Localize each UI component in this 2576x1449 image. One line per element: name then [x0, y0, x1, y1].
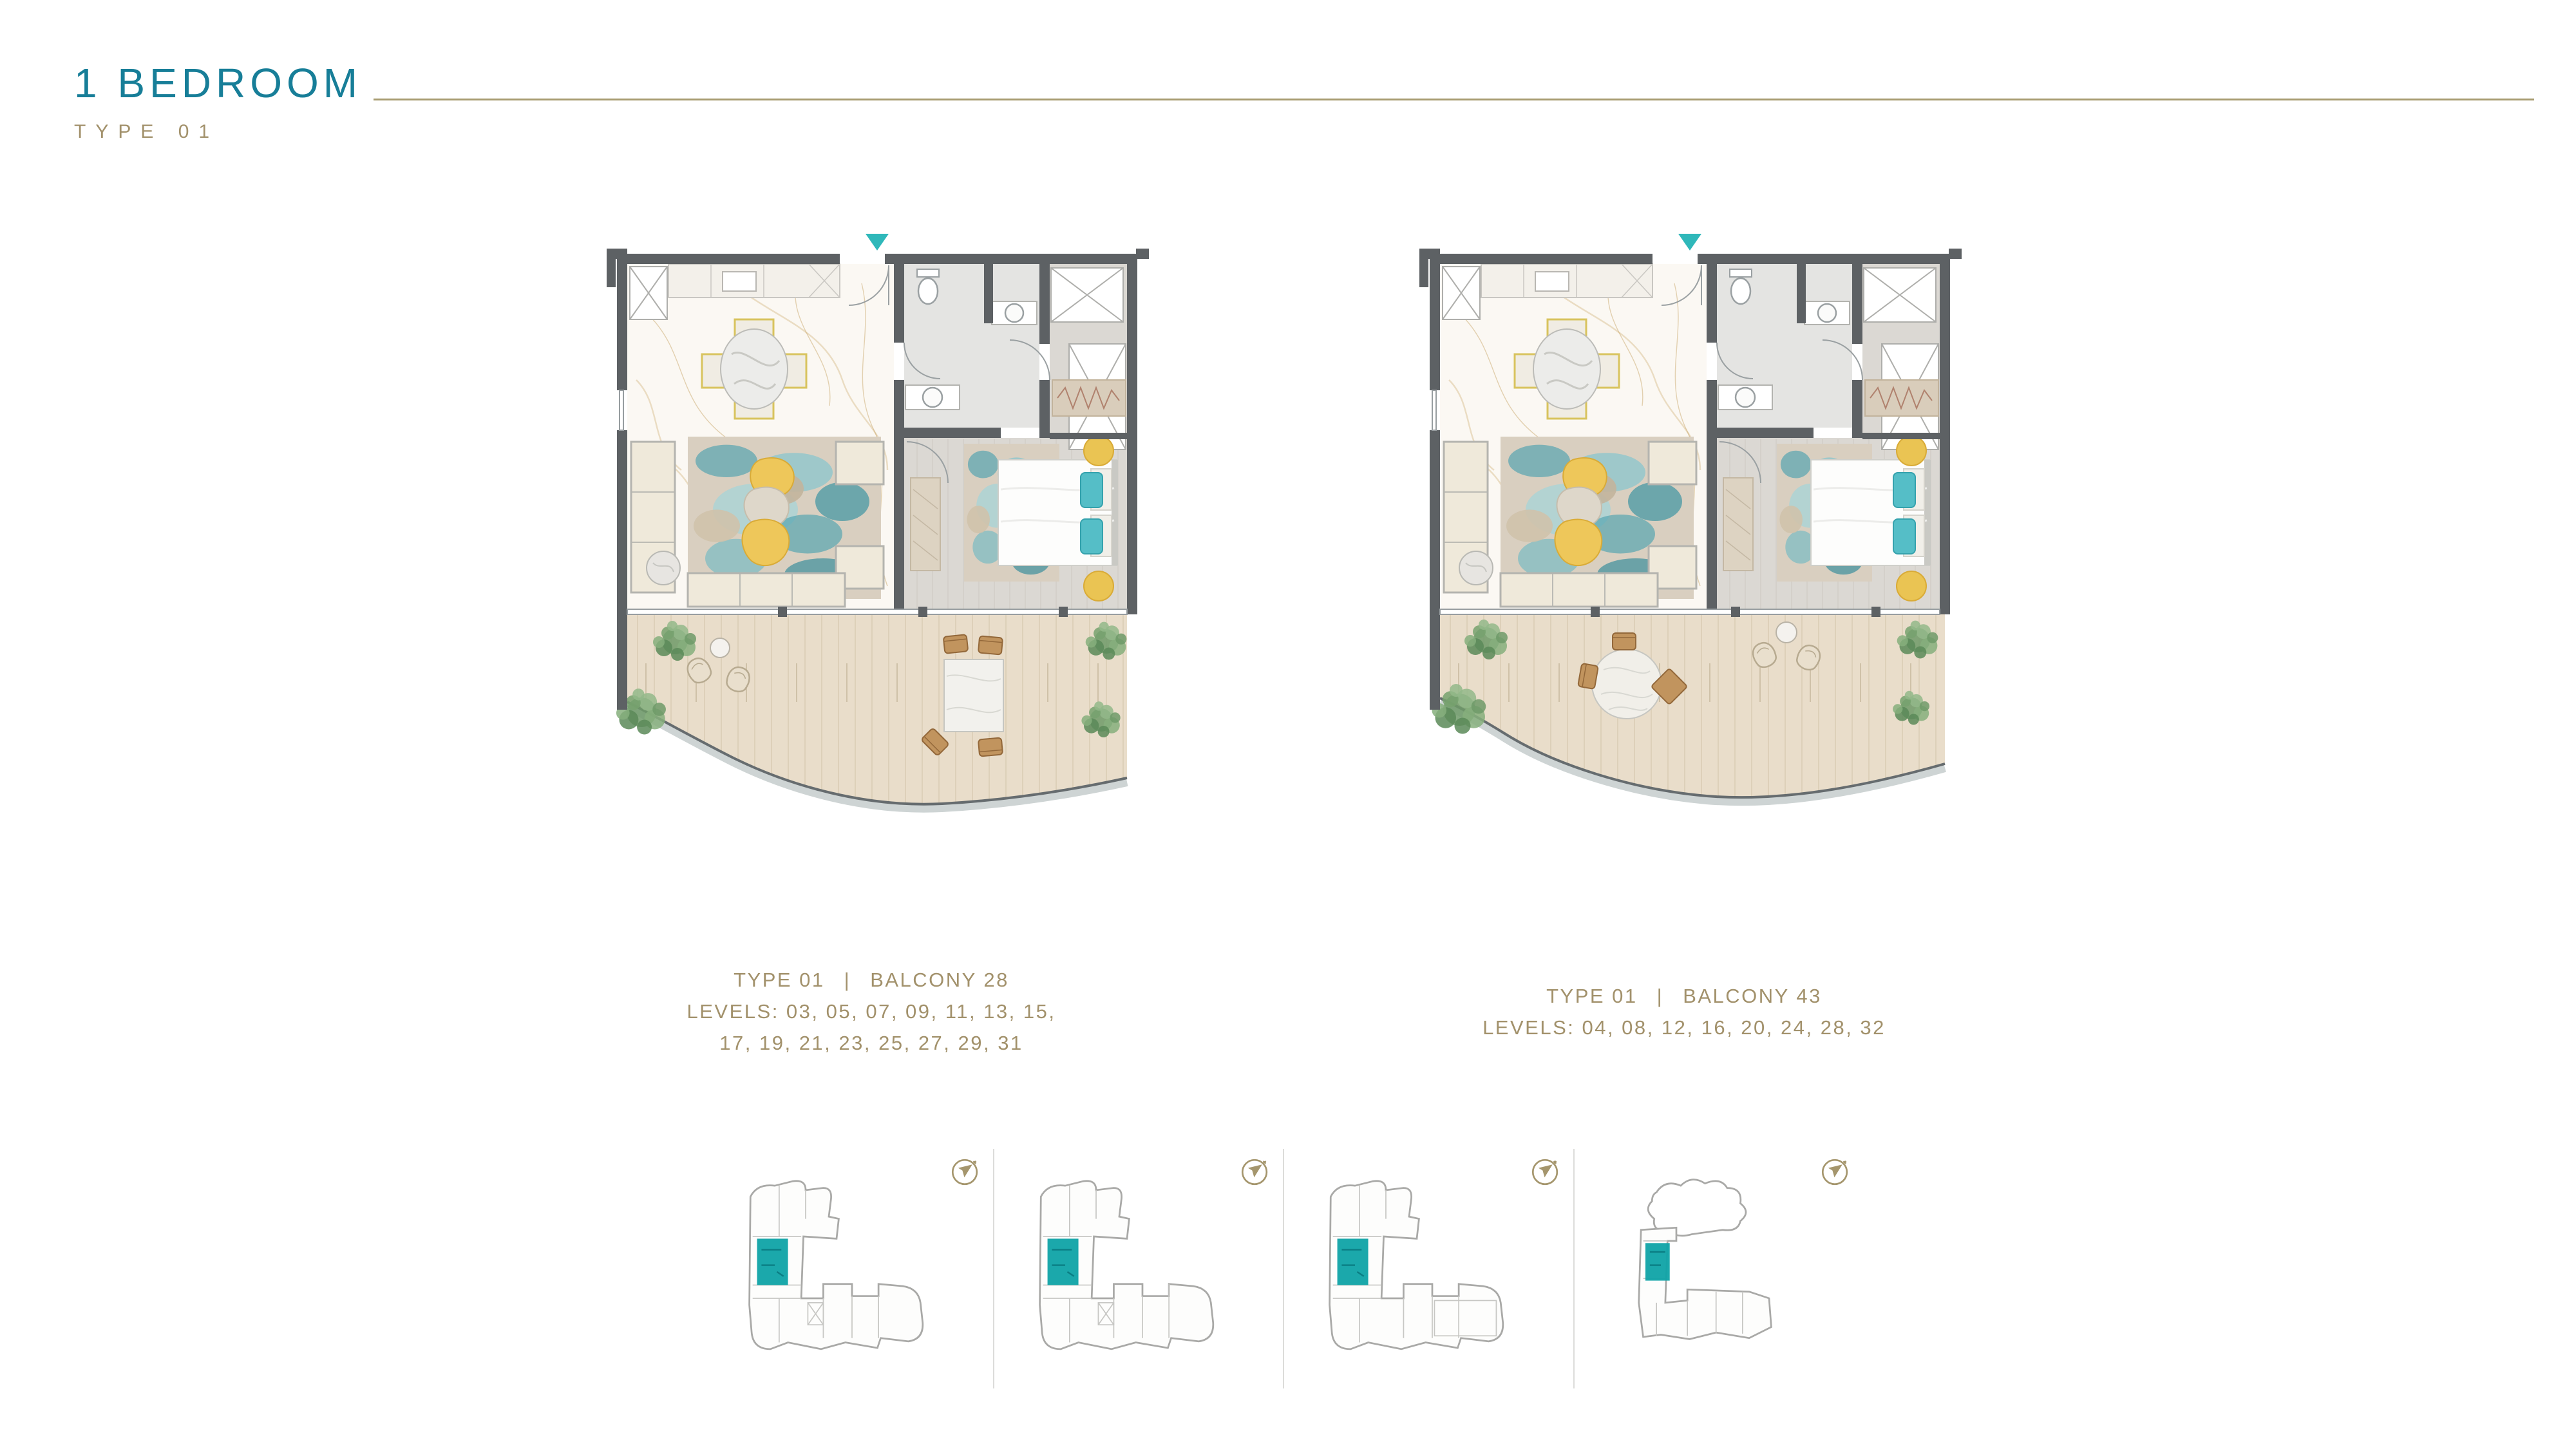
- pillow-icon: [1081, 519, 1103, 554]
- key-plan-building-3: [1293, 1175, 1525, 1381]
- chair-icon: [943, 634, 969, 654]
- chair-icon: [978, 636, 1003, 654]
- coffee-table-icon: [1555, 458, 1606, 565]
- caption-levels-line: 17, 19, 21, 23, 25, 27, 29, 31: [591, 1027, 1151, 1059]
- caption-balcony: BALCONY 43: [1683, 980, 1822, 1012]
- key-plan-building-4: [1584, 1175, 1815, 1381]
- balcony: [1432, 614, 1946, 811]
- caption-levels-line: LEVELS: 04, 08, 12, 16, 20, 24, 28, 32: [1394, 1012, 1974, 1043]
- dresser-icon: [1723, 478, 1753, 571]
- key-plan-building-2: [1003, 1175, 1235, 1381]
- entry-marker-icon: [866, 234, 889, 251]
- chair-icon: [978, 737, 1003, 756]
- header: 1 BEDROOM TYPE 01: [74, 59, 2534, 143]
- brochure-page: 1 BEDROOM TYPE 01: [0, 0, 2576, 1449]
- gold-rule: [374, 99, 2534, 100]
- key-plan-3: [1284, 1149, 1575, 1388]
- armchair-icon: [1649, 442, 1696, 484]
- balcony: [616, 614, 1127, 811]
- caption-plan-1: TYPE 01 | BALCONY 28 LEVELS: 03, 05, 07,…: [591, 964, 1151, 1059]
- nightstand-icon: [1897, 436, 1926, 466]
- side-table-icon: [1459, 551, 1493, 585]
- side-table-icon: [1776, 622, 1797, 643]
- caption-divider: |: [844, 964, 851, 996]
- bed-icon: [998, 460, 1118, 565]
- nightstand-icon: [1084, 436, 1113, 466]
- caption-balcony: BALCONY 28: [870, 964, 1009, 996]
- page-title: 1 BEDROOM: [74, 59, 362, 107]
- dresser-icon: [911, 478, 940, 571]
- kitchen-counter: [1481, 264, 1653, 298]
- caption-plan-2: TYPE 01 | BALCONY 43 LEVELS: 04, 08, 12,…: [1394, 980, 1974, 1043]
- nightstand-icon: [1084, 571, 1113, 601]
- floor-plan-2: [1404, 187, 1964, 838]
- key-plan-strip: [704, 1149, 1863, 1388]
- tv-console-icon: [1501, 573, 1658, 607]
- key-plan-1: [704, 1149, 994, 1388]
- page-subtitle: TYPE 01: [74, 121, 2534, 143]
- chair-icon: [1578, 663, 1598, 689]
- sink-icon: [992, 301, 1037, 325]
- key-plan-2: [994, 1149, 1285, 1388]
- tv-console-icon: [688, 573, 845, 607]
- entry-marker-icon: [1678, 234, 1701, 251]
- nightstand-icon: [1897, 571, 1926, 601]
- highlighted-unit: [757, 1238, 788, 1285]
- sink-icon: [1718, 385, 1772, 410]
- key-plan-4: [1575, 1149, 1864, 1388]
- highlighted-unit: [1338, 1238, 1368, 1285]
- toilet-icon: [1730, 269, 1752, 304]
- highlighted-unit: [1645, 1243, 1669, 1280]
- pillow-icon: [1893, 473, 1915, 507]
- compass-icon: [1531, 1157, 1560, 1186]
- side-table-icon: [647, 551, 680, 585]
- coffee-table-icon: [742, 458, 793, 565]
- key-plan-building-1: [713, 1175, 945, 1381]
- armchair-icon: [836, 442, 884, 484]
- compass-icon: [1240, 1157, 1270, 1186]
- sink-icon: [1804, 301, 1850, 325]
- compass-icon: [951, 1157, 980, 1186]
- side-table-icon: [710, 638, 730, 658]
- outdoor-dining-table-icon: [1592, 649, 1662, 719]
- caption-type: TYPE 01: [1546, 980, 1638, 1012]
- bed-icon: [1811, 460, 1931, 565]
- chair-icon: [1613, 633, 1636, 650]
- outdoor-dining-table-icon: [944, 659, 1003, 732]
- floor-plan-1: [591, 187, 1151, 838]
- sink-icon: [905, 385, 960, 410]
- bench-icon: [1052, 380, 1126, 416]
- compass-icon: [1821, 1157, 1850, 1186]
- caption-type: TYPE 01: [734, 964, 825, 996]
- caption-divider: |: [1657, 980, 1664, 1012]
- bench-icon: [1865, 380, 1938, 416]
- caption-levels-line: LEVELS: 03, 05, 07, 09, 11, 13, 15,: [591, 996, 1151, 1027]
- pillow-icon: [1081, 473, 1103, 507]
- pillow-icon: [1893, 519, 1915, 554]
- kitchen-counter: [668, 264, 840, 298]
- toilet-icon: [917, 269, 939, 304]
- highlighted-unit: [1047, 1238, 1078, 1285]
